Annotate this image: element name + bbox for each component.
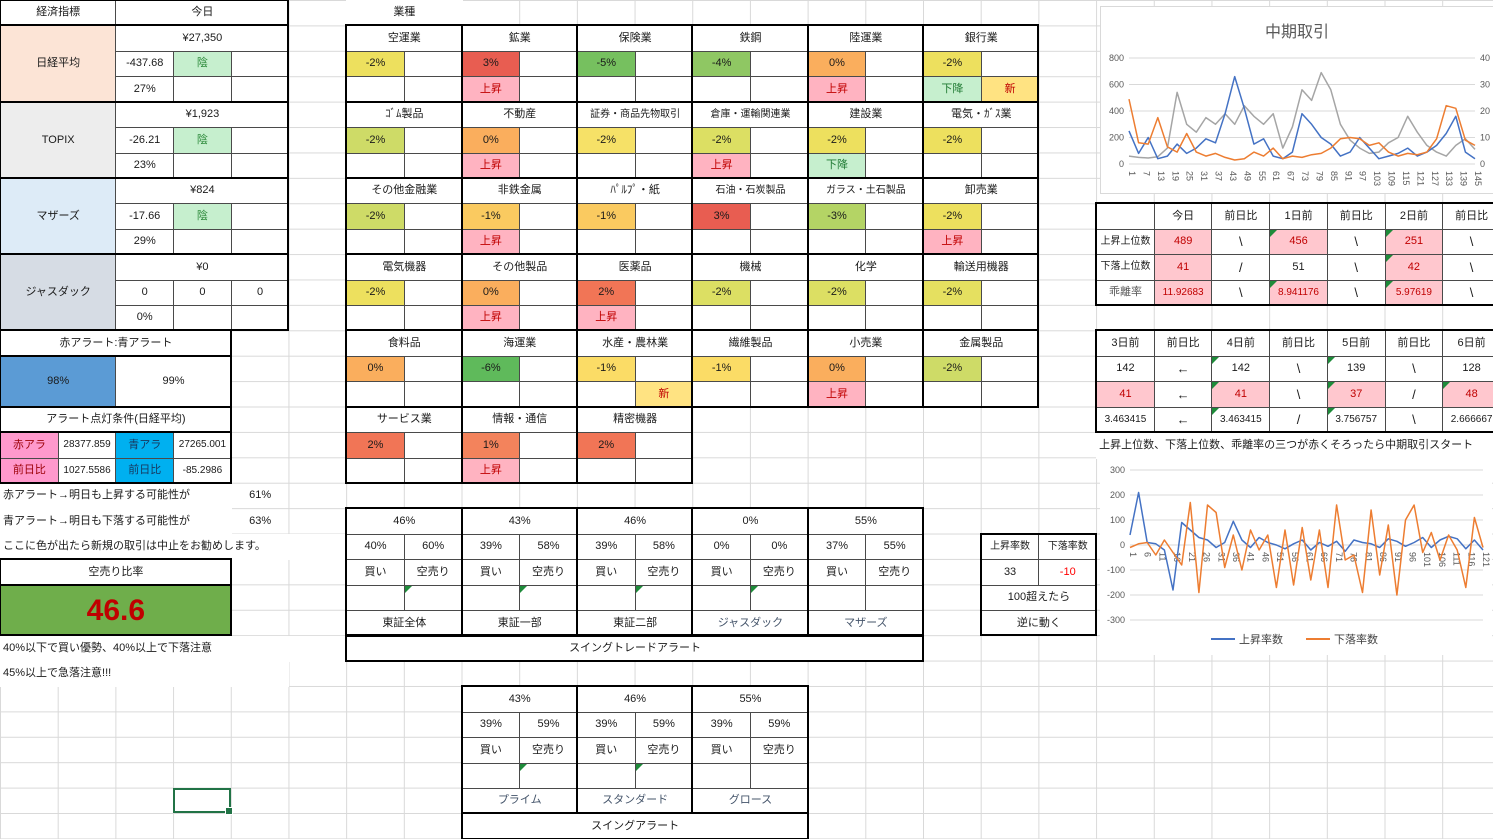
cell-r7-c8[interactable]: 非鉄金属 xyxy=(462,178,578,204)
cell-r22-c13[interactable]: 空売り xyxy=(750,559,809,585)
nikkei-price[interactable]: ¥27,350 xyxy=(115,25,289,51)
cell-r18-c11[interactable] xyxy=(635,458,694,484)
cell-r14-c20[interactable]: ← xyxy=(1154,356,1213,382)
cell-r14-c11[interactable] xyxy=(635,356,694,382)
cell-r9-c14[interactable] xyxy=(808,229,867,255)
nikkei-pct[interactable]: 27% xyxy=(115,76,174,102)
cell-r5-c7[interactable] xyxy=(404,127,463,153)
cell-r10-c23[interactable]: \ xyxy=(1327,254,1386,280)
cell-r2-c8[interactable]: 3% xyxy=(462,51,521,77)
cell-r17-c8[interactable]: 1% xyxy=(462,432,521,458)
cell-r6-c3[interactable] xyxy=(173,153,232,179)
cell-r13-c21[interactable]: 4日前 xyxy=(1211,330,1270,356)
cell-r7-c6[interactable]: その他金融業 xyxy=(346,178,462,204)
mothers-pct[interactable]: 29% xyxy=(115,229,174,255)
cell-r11-c24[interactable]: 5.97619 xyxy=(1385,280,1444,306)
cell-r11-c10[interactable]: 2% xyxy=(577,280,636,306)
short-sell-ratio-value[interactable]: 46.6 xyxy=(0,585,232,637)
cell-r15-c20[interactable]: ← xyxy=(1154,381,1213,407)
cell-r6-c14[interactable]: 下降 xyxy=(808,153,867,179)
cell-r18-c0[interactable]: 前日比 xyxy=(0,458,59,484)
cell-r3-c11[interactable] xyxy=(635,76,694,102)
cell-r7-c14[interactable]: ガラス・土石製品 xyxy=(808,178,924,204)
cell-r18-c1[interactable]: 1027.5586 xyxy=(58,458,117,484)
cell-r15-c6[interactable] xyxy=(346,381,405,407)
cell-r5-c4[interactable] xyxy=(231,127,290,153)
cell-r30-c10[interactable] xyxy=(577,763,636,789)
cell-r28-c10[interactable]: 39% xyxy=(577,712,636,738)
cell-r6-c15[interactable] xyxy=(865,153,924,179)
cell-r13-c10[interactable]: 水産・農林業 xyxy=(577,330,693,356)
cell-r13-c24[interactable]: 前日比 xyxy=(1385,330,1444,356)
cell-r8-c14[interactable]: -3% xyxy=(808,203,867,229)
cell-r20-c14[interactable]: 55% xyxy=(808,508,924,534)
ratio-note-1[interactable]: 40%以下で買い優勢、40%以上で下落注意 xyxy=(0,636,347,662)
cell-r13-c22[interactable]: 前日比 xyxy=(1269,330,1328,356)
cell-r23-c14[interactable] xyxy=(808,585,867,611)
cell-r21-c8[interactable]: 39% xyxy=(462,534,521,560)
cell-r14-c9[interactable] xyxy=(519,356,578,382)
cell-r12-c8[interactable]: 上昇 xyxy=(462,305,521,331)
cell-r12-c14[interactable] xyxy=(808,305,867,331)
cell-r11-c22[interactable]: 8.941176 xyxy=(1269,280,1328,306)
cell-r8-c24[interactable]: 2日前 xyxy=(1385,203,1444,229)
cell-r16-c23[interactable]: 3.756757 xyxy=(1327,407,1386,433)
cell-r29-c10[interactable]: 買い xyxy=(577,737,636,763)
cell-r10-c12[interactable]: 機械 xyxy=(692,254,808,280)
label-tse-2[interactable]: 東証二部 xyxy=(577,610,693,636)
cell-r14-c16[interactable]: -2% xyxy=(923,356,982,382)
cell-r5-c16[interactable]: -2% xyxy=(923,127,982,153)
cell-r10-c8[interactable]: その他製品 xyxy=(462,254,578,280)
cell-r4-c14[interactable]: 建設業 xyxy=(808,102,924,128)
cell-r17-c6[interactable]: 2% xyxy=(346,432,405,458)
cell-r11-c3[interactable]: 0 xyxy=(173,280,232,306)
cell-r23-c17[interactable]: 100超えたら xyxy=(981,585,1097,611)
cell-r6-c11[interactable] xyxy=(635,153,694,179)
rise-rate-header[interactable]: 上昇率数 xyxy=(981,534,1040,560)
cell-r16-c20[interactable]: ← xyxy=(1154,407,1213,433)
cell-r4-c12[interactable]: 倉庫・運輸関連業 xyxy=(692,102,808,128)
cell-r11-c12[interactable]: -2% xyxy=(692,280,751,306)
cell-r8-c22[interactable]: 1日前 xyxy=(1269,203,1328,229)
cell-r6-c8[interactable]: 上昇 xyxy=(462,153,521,179)
falling-top-count-label[interactable]: 下落上位数 xyxy=(1096,254,1155,280)
cell-r9-c24[interactable]: 251 xyxy=(1385,229,1444,255)
cell-r29-c12[interactable]: 買い xyxy=(692,737,751,763)
fall-rate-value[interactable]: -10 xyxy=(1038,559,1097,585)
cell-r23-c9[interactable] xyxy=(519,585,578,611)
cell-r22-c15[interactable]: 空売り xyxy=(865,559,924,585)
cell-r9-c22[interactable]: 456 xyxy=(1269,229,1328,255)
cell-r12-c16[interactable] xyxy=(923,305,982,331)
cell-r3-c15[interactable] xyxy=(865,76,924,102)
cell-r11-c4[interactable]: 0 xyxy=(231,280,290,306)
cell-r10-c22[interactable]: 51 xyxy=(1269,254,1328,280)
cell-r5-c12[interactable]: -2% xyxy=(692,127,751,153)
label-jasdaq[interactable]: ジャスダック xyxy=(692,610,808,636)
cell-r3-c9[interactable] xyxy=(519,76,578,102)
cell-r14-c7[interactable] xyxy=(404,356,463,382)
cell-r2-c13[interactable] xyxy=(750,51,809,77)
cell-r16-c19[interactable]: 3.463415 xyxy=(1096,407,1155,433)
cell-r23-c12[interactable] xyxy=(692,585,751,611)
cell-r22-c6[interactable]: 買い xyxy=(346,559,405,585)
nikkei-candle[interactable]: 陰 xyxy=(173,51,232,77)
cell-r23-c8[interactable] xyxy=(462,585,521,611)
cell-r9-c20[interactable]: 489 xyxy=(1154,229,1213,255)
cell-r3-c14[interactable]: 上昇 xyxy=(808,76,867,102)
cell-r8-c13[interactable] xyxy=(750,203,809,229)
cell-r16-c8[interactable]: 情報・通信 xyxy=(462,407,578,433)
cell-r15-c21[interactable]: 41 xyxy=(1211,381,1270,407)
cell-r2-c7[interactable] xyxy=(404,51,463,77)
cell-r14-c22[interactable]: \ xyxy=(1269,356,1328,382)
cell-r2-c16[interactable]: -2% xyxy=(923,51,982,77)
cell-r2-c15[interactable] xyxy=(865,51,924,77)
cell-r21-c9[interactable]: 58% xyxy=(519,534,578,560)
cell-r21-c7[interactable]: 60% xyxy=(404,534,463,560)
cell-r5-c13[interactable] xyxy=(750,127,809,153)
cell-r4-c16[interactable]: 電気・ｶﾞｽ業 xyxy=(923,102,1039,128)
blue-alert-pct[interactable]: 99% xyxy=(115,356,231,408)
cell-r1-c12[interactable]: 鉄鋼 xyxy=(692,25,808,51)
cell-r27-c10[interactable]: 46% xyxy=(577,686,693,712)
cell-r11-c13[interactable] xyxy=(750,280,809,306)
cell-r3-c17[interactable]: 新 xyxy=(981,76,1040,102)
cell-r30-c9[interactable] xyxy=(519,763,578,789)
cell-r14-c12[interactable]: -1% xyxy=(692,356,751,382)
cell-r8-c4[interactable] xyxy=(231,203,290,229)
topix-price[interactable]: ¥1,923 xyxy=(115,102,289,128)
midterm-start-note[interactable]: 上昇上位数、下落上位数、乖離率の三つが赤くそろったら中期取引スタート xyxy=(1096,432,1493,458)
blue-alert-label[interactable]: 青アラ xyxy=(115,432,174,458)
cell-r12-c11[interactable] xyxy=(635,305,694,331)
cell-r30-c12[interactable] xyxy=(692,763,751,789)
cell-r3-c8[interactable]: 上昇 xyxy=(462,76,521,102)
cell-r21-c11[interactable]: 58% xyxy=(635,534,694,560)
cell-r3-c4[interactable] xyxy=(231,76,290,102)
cell-r12-c7[interactable] xyxy=(404,305,463,331)
cell-r9-c17[interactable] xyxy=(981,229,1040,255)
cell-r12-c13[interactable] xyxy=(750,305,809,331)
cell-r1-c16[interactable]: 銀行業 xyxy=(923,25,1039,51)
cell-r7-c12[interactable]: 石油・石炭製品 xyxy=(692,178,808,204)
cell-r13-c23[interactable]: 5日前 xyxy=(1327,330,1386,356)
red-alert-note[interactable]: 赤アラート→明日も上昇する可能性が xyxy=(0,483,232,509)
fall-rate-header[interactable]: 下落率数 xyxy=(1038,534,1097,560)
topix-candle[interactable]: 陰 xyxy=(173,127,232,153)
cell-r12-c10[interactable]: 上昇 xyxy=(577,305,636,331)
cell-r11-c9[interactable] xyxy=(519,280,578,306)
cell-r1-c6[interactable]: 空運業 xyxy=(346,25,462,51)
cell-r15-c10[interactable] xyxy=(577,381,636,407)
cell-r13-c16[interactable]: 金属製品 xyxy=(923,330,1039,356)
cell-r5-c17[interactable] xyxy=(981,127,1040,153)
cell-r20-c10[interactable]: 46% xyxy=(577,508,693,534)
cell-r9-c9[interactable] xyxy=(519,229,578,255)
cell-r18-c3[interactable]: -85.2986 xyxy=(173,458,232,484)
topix-change[interactable]: -26.21 xyxy=(115,127,174,153)
cell-r1-c14[interactable]: 陸運業 xyxy=(808,25,924,51)
cell-r8-c20[interactable]: 今日 xyxy=(1154,203,1213,229)
cell-r18-c7[interactable] xyxy=(404,458,463,484)
cell-r9-c16[interactable]: 上昇 xyxy=(923,229,982,255)
cell-r15-c13[interactable] xyxy=(750,381,809,407)
cell-r7-c10[interactable]: ﾊﾟﾙﾌﾟ・紙 xyxy=(577,178,693,204)
cell-r9-c23[interactable]: \ xyxy=(1327,229,1386,255)
fill-handle[interactable] xyxy=(225,807,233,815)
swing-trade-alert-title[interactable]: スイングトレードアラート xyxy=(346,636,924,662)
cell-r10-c21[interactable]: / xyxy=(1211,254,1270,280)
cell-r8-c16[interactable]: -2% xyxy=(923,203,982,229)
stop-trading-note[interactable]: ここに色が出たら新規の取引は中止をお勧めします。 xyxy=(0,534,347,560)
red-alert-prob[interactable]: 61% xyxy=(231,483,290,509)
cell-r15-c11[interactable]: 新 xyxy=(635,381,694,407)
cell-r8-c7[interactable] xyxy=(404,203,463,229)
cell-r1-c10[interactable]: 保険業 xyxy=(577,25,693,51)
cell-r9-c6[interactable] xyxy=(346,229,405,255)
cell-r5-c6[interactable]: -2% xyxy=(346,127,405,153)
cell-r13-c6[interactable]: 食料品 xyxy=(346,330,462,356)
cell-r8-c11[interactable] xyxy=(635,203,694,229)
cell-r3-c16[interactable]: 下降 xyxy=(923,76,982,102)
cell-r10-c24[interactable]: 42 xyxy=(1385,254,1444,280)
cell-r14-c24[interactable]: \ xyxy=(1385,356,1444,382)
label-standard[interactable]: スタンダード xyxy=(577,788,693,814)
cell-r28-c12[interactable]: 39% xyxy=(692,712,751,738)
cell-r5-c8[interactable]: 0% xyxy=(462,127,521,153)
cell-r15-c24[interactable]: / xyxy=(1385,381,1444,407)
short-sell-ratio-header[interactable]: 空売り比率 xyxy=(0,559,232,585)
cell-r14-c17[interactable] xyxy=(981,356,1040,382)
cell-r3-c3[interactable] xyxy=(173,76,232,102)
cell-r15-c9[interactable] xyxy=(519,381,578,407)
cell-r8-c10[interactable]: -1% xyxy=(577,203,636,229)
cell-r3-c12[interactable] xyxy=(692,76,751,102)
cell-r14-c6[interactable]: 0% xyxy=(346,356,405,382)
cell-r14-c23[interactable]: 139 xyxy=(1327,356,1386,382)
cell-r21-c14[interactable]: 37% xyxy=(808,534,867,560)
mothers-candle[interactable]: 陰 xyxy=(173,203,232,229)
cell-r13-c12[interactable]: 繊維製品 xyxy=(692,330,808,356)
cell-r10-c14[interactable]: 化学 xyxy=(808,254,924,280)
cell-r13-c20[interactable]: 前日比 xyxy=(1154,330,1213,356)
cell-r10-c6[interactable]: 電気機器 xyxy=(346,254,462,280)
cell-r2-c14[interactable]: 0% xyxy=(808,51,867,77)
cell-r9-c12[interactable] xyxy=(692,229,751,255)
cell-r14-c15[interactable] xyxy=(865,356,924,382)
cell-r12-c3[interactable] xyxy=(173,305,232,331)
cell-r5-c10[interactable]: -2% xyxy=(577,127,636,153)
cell-r17-c9[interactable] xyxy=(519,432,578,458)
cell-r4-c10[interactable]: 証券・商品先物取引 xyxy=(577,102,693,128)
cell-r15-c17[interactable] xyxy=(981,381,1040,407)
spreadsheet-canvas[interactable]: 経済指標今日日経平均¥27,350-437.68陰27%TOPIX¥1,923-… xyxy=(0,0,1493,839)
alert-condition-header[interactable]: アラート点灯条件(日経平均) xyxy=(0,407,232,433)
cell-r20-c6[interactable]: 46% xyxy=(346,508,462,534)
red-alert-pct[interactable]: 98% xyxy=(0,356,116,408)
cell-r17-c11[interactable] xyxy=(635,432,694,458)
cell-r18-c6[interactable] xyxy=(346,458,405,484)
cell-r9-c13[interactable] xyxy=(750,229,809,255)
cell-r16-c10[interactable]: 精密機器 xyxy=(577,407,693,433)
cell-r11-c11[interactable] xyxy=(635,280,694,306)
cell-r15-c22[interactable]: \ xyxy=(1269,381,1328,407)
cell-r14-c19[interactable]: 142 xyxy=(1096,356,1155,382)
cell-r6-c13[interactable] xyxy=(750,153,809,179)
cell-r11-c21[interactable]: \ xyxy=(1211,280,1270,306)
cell-r13-c19[interactable]: 3日前 xyxy=(1096,330,1155,356)
cell-r29-c13[interactable]: 空売り xyxy=(750,737,809,763)
cell-r11-c7[interactable] xyxy=(404,280,463,306)
ratio-note-2[interactable]: 45%以上で急落注意!!! xyxy=(0,661,289,687)
cell-r22-c12[interactable]: 買い xyxy=(692,559,751,585)
cell-r18-c9[interactable] xyxy=(519,458,578,484)
cell-r2-c4[interactable] xyxy=(231,51,290,77)
selected-cell-outline[interactable] xyxy=(173,788,231,813)
cell-r14-c8[interactable]: -6% xyxy=(462,356,521,382)
cell-r8-c23[interactable]: 前日比 xyxy=(1327,203,1386,229)
cell-r12-c6[interactable] xyxy=(346,305,405,331)
rise-rate-value[interactable]: 33 xyxy=(981,559,1040,585)
cell-r28-c9[interactable]: 59% xyxy=(519,712,578,738)
cell-r11-c20[interactable]: 11.92683 xyxy=(1154,280,1213,306)
cell-r23-c11[interactable] xyxy=(635,585,694,611)
label-growth[interactable]: グロース xyxy=(692,788,808,814)
swing-alert-title[interactable]: スイングアラート xyxy=(462,813,809,839)
cell-r14-c14[interactable]: 0% xyxy=(808,356,867,382)
cell-r2-c6[interactable]: -2% xyxy=(346,51,405,77)
cell-r8-c12[interactable]: 3% xyxy=(692,203,751,229)
cell-r15-c12[interactable] xyxy=(692,381,751,407)
alert-header[interactable]: 赤アラート:青アラート xyxy=(0,330,232,356)
cell-r2-c10[interactable]: -5% xyxy=(577,51,636,77)
cell-r6-c12[interactable]: 上昇 xyxy=(692,153,751,179)
header-economic-indicator[interactable]: 経済指標 xyxy=(0,0,116,26)
cell-r4-c6[interactable]: ｺﾞﾑ製品 xyxy=(346,102,462,128)
cell-r10-c20[interactable]: 41 xyxy=(1154,254,1213,280)
cell-r6-c17[interactable] xyxy=(981,153,1040,179)
cell-r15-c15[interactable] xyxy=(865,381,924,407)
cell-r6-c16[interactable] xyxy=(923,153,982,179)
cell-r29-c8[interactable]: 買い xyxy=(462,737,521,763)
cell-r29-c9[interactable]: 空売り xyxy=(519,737,578,763)
topix-pct[interactable]: 23% xyxy=(115,153,174,179)
jasdaq-pct[interactable]: 0% xyxy=(115,305,174,331)
cell-r22-c14[interactable]: 買い xyxy=(808,559,867,585)
label-tse-all[interactable]: 東証全体 xyxy=(346,610,462,636)
blue-alert-note[interactable]: 青アラート→明日も下落する可能性が xyxy=(0,508,232,534)
cell-r15-c23[interactable]: 37 xyxy=(1327,381,1386,407)
cell-r3-c7[interactable] xyxy=(404,76,463,102)
cell-r16-c6[interactable]: サービス業 xyxy=(346,407,462,433)
cell-r12-c9[interactable] xyxy=(519,305,578,331)
cell-r11-c14[interactable]: -2% xyxy=(808,280,867,306)
cell-r9-c25[interactable]: \ xyxy=(1442,229,1493,255)
cell-r23-c13[interactable] xyxy=(750,585,809,611)
jasdaq-price[interactable]: ¥0 xyxy=(115,254,289,280)
rising-top-count-label[interactable]: 上昇上位数 xyxy=(1096,229,1155,255)
cell-r28-c11[interactable]: 59% xyxy=(635,712,694,738)
cell-r16-c22[interactable]: / xyxy=(1269,407,1328,433)
mothers-change[interactable]: -17.66 xyxy=(115,203,174,229)
cell-r24-c17[interactable]: 逆に動く xyxy=(981,610,1097,636)
blue-alert-prob[interactable]: 63% xyxy=(231,508,290,534)
cell-r14-c10[interactable]: -1% xyxy=(577,356,636,382)
cell-r5-c14[interactable]: -2% xyxy=(808,127,867,153)
cell-r7-c16[interactable]: 卸売業 xyxy=(923,178,1039,204)
cell-r27-c12[interactable]: 55% xyxy=(692,686,808,712)
cell-r21-c10[interactable]: 39% xyxy=(577,534,636,560)
cell-r8-c9[interactable] xyxy=(519,203,578,229)
cell-r9-c7[interactable] xyxy=(404,229,463,255)
sector-table-title[interactable]: 業種 xyxy=(346,0,462,26)
cell-r21-c13[interactable]: 0% xyxy=(750,534,809,560)
cell-r29-c11[interactable]: 空売り xyxy=(635,737,694,763)
cell-r18-c10[interactable] xyxy=(577,458,636,484)
label-prime[interactable]: プライム xyxy=(462,788,578,814)
cell-r28-c8[interactable]: 39% xyxy=(462,712,521,738)
cell-r9-c3[interactable] xyxy=(173,229,232,255)
cell-r23-c7[interactable] xyxy=(404,585,463,611)
cell-r11-c25[interactable]: \ xyxy=(1442,280,1493,306)
cell-r3-c10[interactable] xyxy=(577,76,636,102)
cell-r10-c16[interactable]: 輸送用機器 xyxy=(923,254,1039,280)
cell-r6-c4[interactable] xyxy=(231,153,290,179)
cell-r28-c13[interactable]: 59% xyxy=(750,712,809,738)
nikkei-change[interactable]: -437.68 xyxy=(115,51,174,77)
cell-r9-c4[interactable] xyxy=(231,229,290,255)
cell-r3-c6[interactable] xyxy=(346,76,405,102)
cell-r21-c6[interactable]: 40% xyxy=(346,534,405,560)
mothers-price[interactable]: ¥824 xyxy=(115,178,289,204)
cell-r8-c21[interactable]: 前日比 xyxy=(1211,203,1270,229)
cell-r5-c9[interactable] xyxy=(519,127,578,153)
cell-r9-c21[interactable]: \ xyxy=(1211,229,1270,255)
cell-r12-c15[interactable] xyxy=(865,305,924,331)
cell-r23-c6[interactable] xyxy=(346,585,405,611)
cell-r18-c8[interactable]: 上昇 xyxy=(462,458,521,484)
cell-r2-c17[interactable] xyxy=(981,51,1040,77)
cell-r30-c11[interactable] xyxy=(635,763,694,789)
cell-r11-c8[interactable]: 0% xyxy=(462,280,521,306)
cell-r14-c13[interactable] xyxy=(750,356,809,382)
cell-r11-c23[interactable]: \ xyxy=(1327,280,1386,306)
cell-r9-c10[interactable] xyxy=(577,229,636,255)
cell-r2-c12[interactable]: -4% xyxy=(692,51,751,77)
cell-r8-c8[interactable]: -1% xyxy=(462,203,521,229)
cell-r21-c12[interactable]: 0% xyxy=(692,534,751,560)
cell-r9-c11[interactable] xyxy=(635,229,694,255)
cell-r22-c7[interactable]: 空売り xyxy=(404,559,463,585)
cell-r22-c9[interactable]: 空売り xyxy=(519,559,578,585)
cell-r11-c15[interactable] xyxy=(865,280,924,306)
cell-r2-c9[interactable] xyxy=(519,51,578,77)
cell-r22-c11[interactable]: 空売り xyxy=(635,559,694,585)
cell-r5-c15[interactable] xyxy=(865,127,924,153)
cell-r30-c8[interactable] xyxy=(462,763,521,789)
cell-r8-c6[interactable]: -2% xyxy=(346,203,405,229)
cell-r10-c25[interactable]: \ xyxy=(1442,254,1493,280)
blue-alert-value[interactable]: 27265.001 xyxy=(173,432,232,458)
cell-r9-c15[interactable] xyxy=(865,229,924,255)
cell-r15-c8[interactable] xyxy=(462,381,521,407)
header-today[interactable]: 今日 xyxy=(115,0,289,26)
cell-r11-c6[interactable]: -2% xyxy=(346,280,405,306)
cell-r22-c8[interactable]: 買い xyxy=(462,559,521,585)
cell-r13-c25[interactable]: 6日前 xyxy=(1442,330,1493,356)
